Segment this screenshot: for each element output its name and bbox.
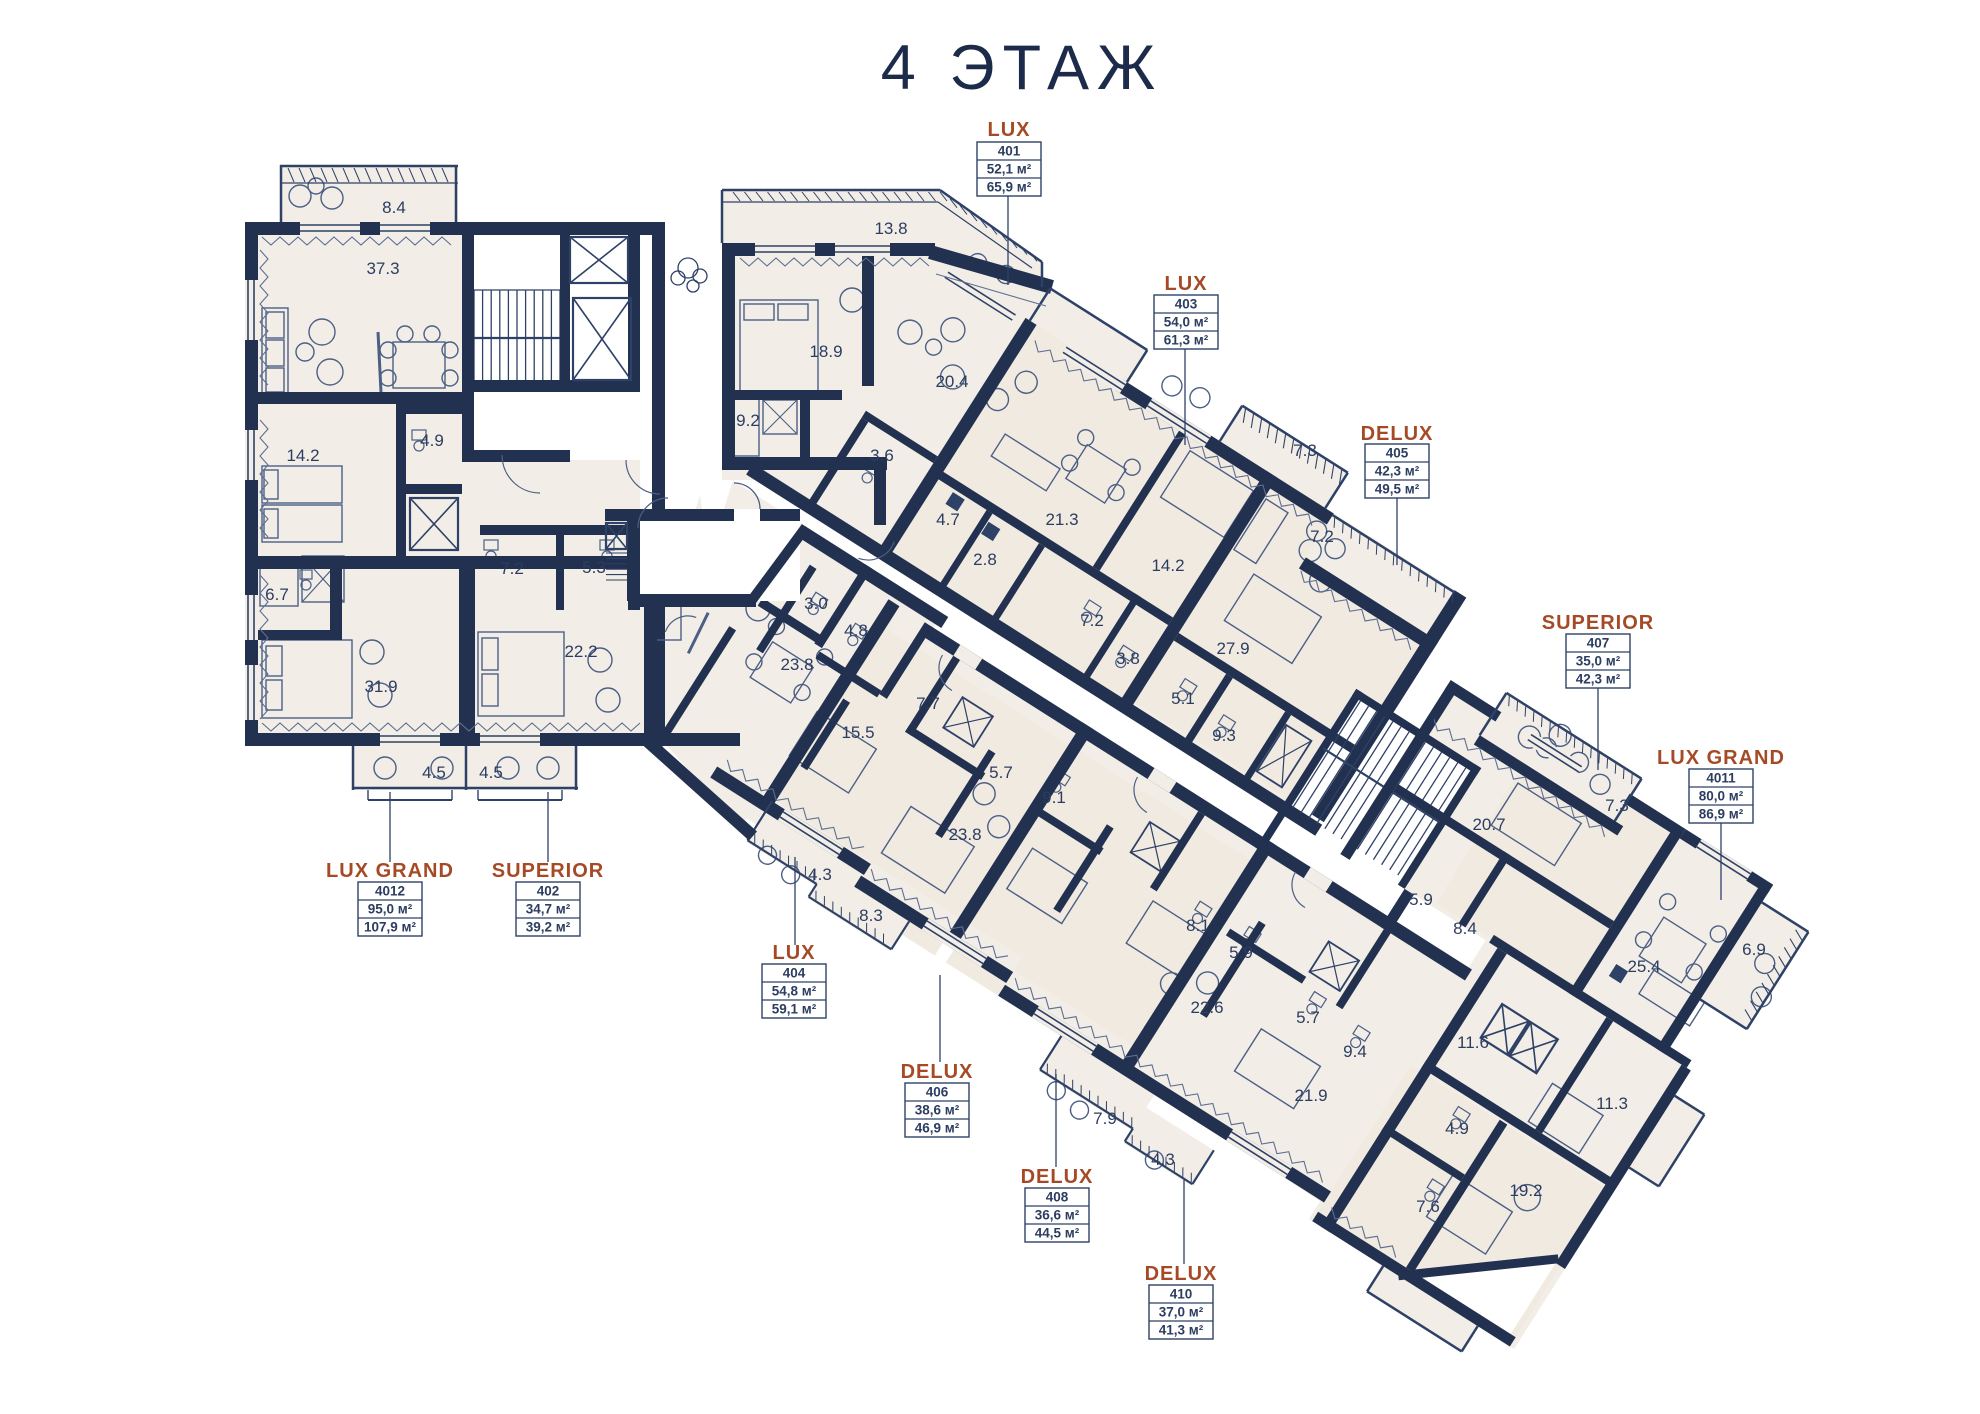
svg-text:49,5 м²: 49,5 м² <box>1375 482 1420 497</box>
svg-text:4 ЭТАЖ: 4 ЭТАЖ <box>881 33 1163 103</box>
svg-text:54,0 м²: 54,0 м² <box>1164 315 1209 330</box>
svg-text:2.8: 2.8 <box>973 550 997 569</box>
svg-text:31.9: 31.9 <box>364 677 397 696</box>
svg-text:LUX GRAND: LUX GRAND <box>326 860 454 882</box>
svg-text:4.5: 4.5 <box>422 763 446 782</box>
svg-text:23.8: 23.8 <box>780 655 813 674</box>
svg-text:3.8: 3.8 <box>1116 649 1140 668</box>
svg-text:44,5 м²: 44,5 м² <box>1035 1226 1080 1241</box>
svg-text:18.9: 18.9 <box>809 342 842 361</box>
svg-text:14.2: 14.2 <box>286 446 319 465</box>
svg-text:22.2: 22.2 <box>564 642 597 661</box>
svg-text:4.5: 4.5 <box>479 763 503 782</box>
svg-text:37,0 м²: 37,0 м² <box>1159 1305 1204 1320</box>
svg-text:38,6 м²: 38,6 м² <box>915 1103 960 1118</box>
svg-text:5.7: 5.7 <box>1296 1008 1320 1027</box>
svg-text:95,0 м²: 95,0 м² <box>368 902 413 917</box>
svg-text:14.2: 14.2 <box>1151 556 1184 575</box>
svg-text:36,6 м²: 36,6 м² <box>1035 1208 1080 1223</box>
svg-text:403: 403 <box>1175 297 1198 312</box>
svg-text:9.4: 9.4 <box>1343 1042 1367 1061</box>
svg-text:7.2: 7.2 <box>1310 527 1334 546</box>
svg-text:35,0 м²: 35,0 м² <box>1576 654 1621 669</box>
svg-text:3.6: 3.6 <box>870 446 894 465</box>
svg-text:11.3: 11.3 <box>1596 1094 1628 1113</box>
svg-text:23.8: 23.8 <box>948 825 981 844</box>
svg-text:6.9: 6.9 <box>1742 940 1766 959</box>
svg-text:86,9 м²: 86,9 м² <box>1699 807 1744 822</box>
svg-text:59,1 м²: 59,1 м² <box>772 1002 817 1017</box>
svg-text:46,9 м²: 46,9 м² <box>915 1121 960 1136</box>
svg-text:54,8 м²: 54,8 м² <box>772 984 817 999</box>
svg-text:11.6: 11.6 <box>1457 1033 1489 1052</box>
svg-text:406: 406 <box>926 1085 949 1100</box>
svg-text:27.9: 27.9 <box>1216 639 1249 658</box>
svg-text:8.4: 8.4 <box>1453 919 1477 938</box>
svg-text:410: 410 <box>1170 1287 1193 1302</box>
svg-text:21.3: 21.3 <box>1045 510 1078 529</box>
svg-text:7.3: 7.3 <box>1605 796 1629 815</box>
svg-text:LUX: LUX <box>1165 273 1208 295</box>
svg-text:25.4: 25.4 <box>1627 957 1660 976</box>
svg-text:15.5: 15.5 <box>841 723 874 742</box>
svg-text:7.9: 7.9 <box>1093 1109 1117 1128</box>
svg-text:4.9: 4.9 <box>420 431 444 450</box>
svg-text:7.6: 7.6 <box>1416 1197 1440 1216</box>
svg-text:8.1: 8.1 <box>1186 916 1210 935</box>
svg-text:DELUX: DELUX <box>1145 1263 1218 1285</box>
svg-text:4.7: 4.7 <box>936 510 960 529</box>
svg-text:9.2: 9.2 <box>736 411 760 430</box>
svg-text:407: 407 <box>1587 636 1610 651</box>
svg-text:DELUX: DELUX <box>901 1061 974 1083</box>
svg-text:7.7: 7.7 <box>916 694 940 713</box>
svg-text:LUX GRAND: LUX GRAND <box>1657 747 1785 769</box>
svg-text:4.8: 4.8 <box>844 621 868 640</box>
svg-text:9.1: 9.1 <box>1042 788 1066 807</box>
svg-text:408: 408 <box>1046 1190 1069 1205</box>
svg-text:61,3 м²: 61,3 м² <box>1164 333 1209 348</box>
svg-text:7.3: 7.3 <box>1293 441 1317 460</box>
svg-text:52,1 м²: 52,1 м² <box>987 162 1032 177</box>
svg-text:7.2: 7.2 <box>1080 611 1104 630</box>
svg-text:8.3: 8.3 <box>859 906 883 925</box>
svg-text:402: 402 <box>537 884 560 899</box>
svg-text:404: 404 <box>783 966 806 981</box>
svg-text:22.6: 22.6 <box>1190 998 1223 1017</box>
svg-text:LUX: LUX <box>773 942 816 964</box>
svg-text:39,2 м²: 39,2 м² <box>526 920 571 935</box>
svg-text:4.3: 4.3 <box>808 865 832 884</box>
svg-text:34,7 м²: 34,7 м² <box>526 902 571 917</box>
svg-text:SUPERIOR: SUPERIOR <box>492 860 604 882</box>
svg-text:5.7: 5.7 <box>989 763 1013 782</box>
svg-text:5.9: 5.9 <box>1409 890 1433 909</box>
svg-text:405: 405 <box>1386 446 1409 461</box>
svg-text:4.3: 4.3 <box>1151 1150 1175 1169</box>
svg-text:13.8: 13.8 <box>874 219 907 238</box>
svg-text:8.4: 8.4 <box>382 198 406 217</box>
svg-text:DELUX: DELUX <box>1361 423 1434 445</box>
svg-text:3.0: 3.0 <box>804 594 828 613</box>
svg-text:20.7: 20.7 <box>1472 815 1505 834</box>
svg-text:SUPERIOR: SUPERIOR <box>1542 612 1654 634</box>
svg-text:4011: 4011 <box>1706 771 1736 786</box>
svg-text:42,3 м²: 42,3 м² <box>1576 672 1621 687</box>
svg-text:LUX: LUX <box>988 119 1031 141</box>
svg-text:6.7: 6.7 <box>265 585 289 604</box>
svg-text:4012: 4012 <box>375 884 405 899</box>
svg-text:5.3: 5.3 <box>582 558 606 577</box>
svg-text:19.2: 19.2 <box>1509 1181 1542 1200</box>
svg-text:107,9 м²: 107,9 м² <box>364 920 417 935</box>
svg-text:401: 401 <box>998 144 1021 159</box>
svg-text:7.2: 7.2 <box>500 559 524 578</box>
svg-text:20.4: 20.4 <box>935 372 968 391</box>
svg-text:37.3: 37.3 <box>366 259 399 278</box>
svg-text:4.9: 4.9 <box>1445 1119 1469 1138</box>
svg-text:65,9 м²: 65,9 м² <box>987 180 1032 195</box>
svg-text:5.1: 5.1 <box>1171 689 1195 708</box>
svg-text:41,3 м²: 41,3 м² <box>1159 1323 1204 1338</box>
svg-text:21.9: 21.9 <box>1294 1086 1327 1105</box>
svg-text:42,3 м²: 42,3 м² <box>1375 464 1420 479</box>
svg-text:DELUX: DELUX <box>1021 1166 1094 1188</box>
svg-text:9.3: 9.3 <box>1212 726 1236 745</box>
svg-text:5.9: 5.9 <box>1229 943 1253 962</box>
svg-text:80,0 м²: 80,0 м² <box>1699 789 1744 804</box>
